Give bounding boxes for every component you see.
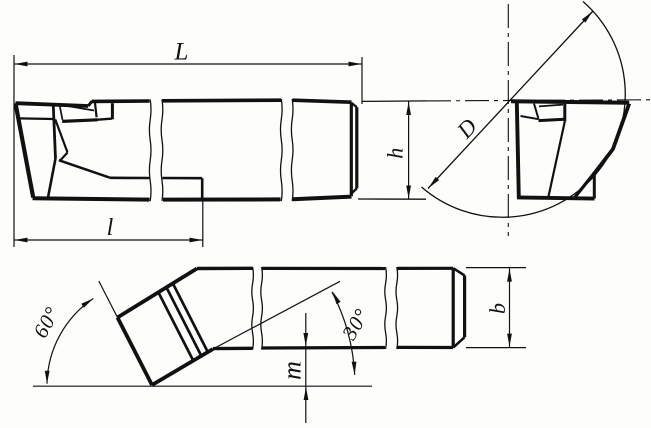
svg-text:h: h — [383, 148, 408, 159]
svg-text:L: L — [174, 39, 189, 66]
svg-text:m: m — [278, 361, 307, 380]
svg-text:b: b — [485, 303, 510, 314]
svg-text:l: l — [107, 215, 114, 241]
